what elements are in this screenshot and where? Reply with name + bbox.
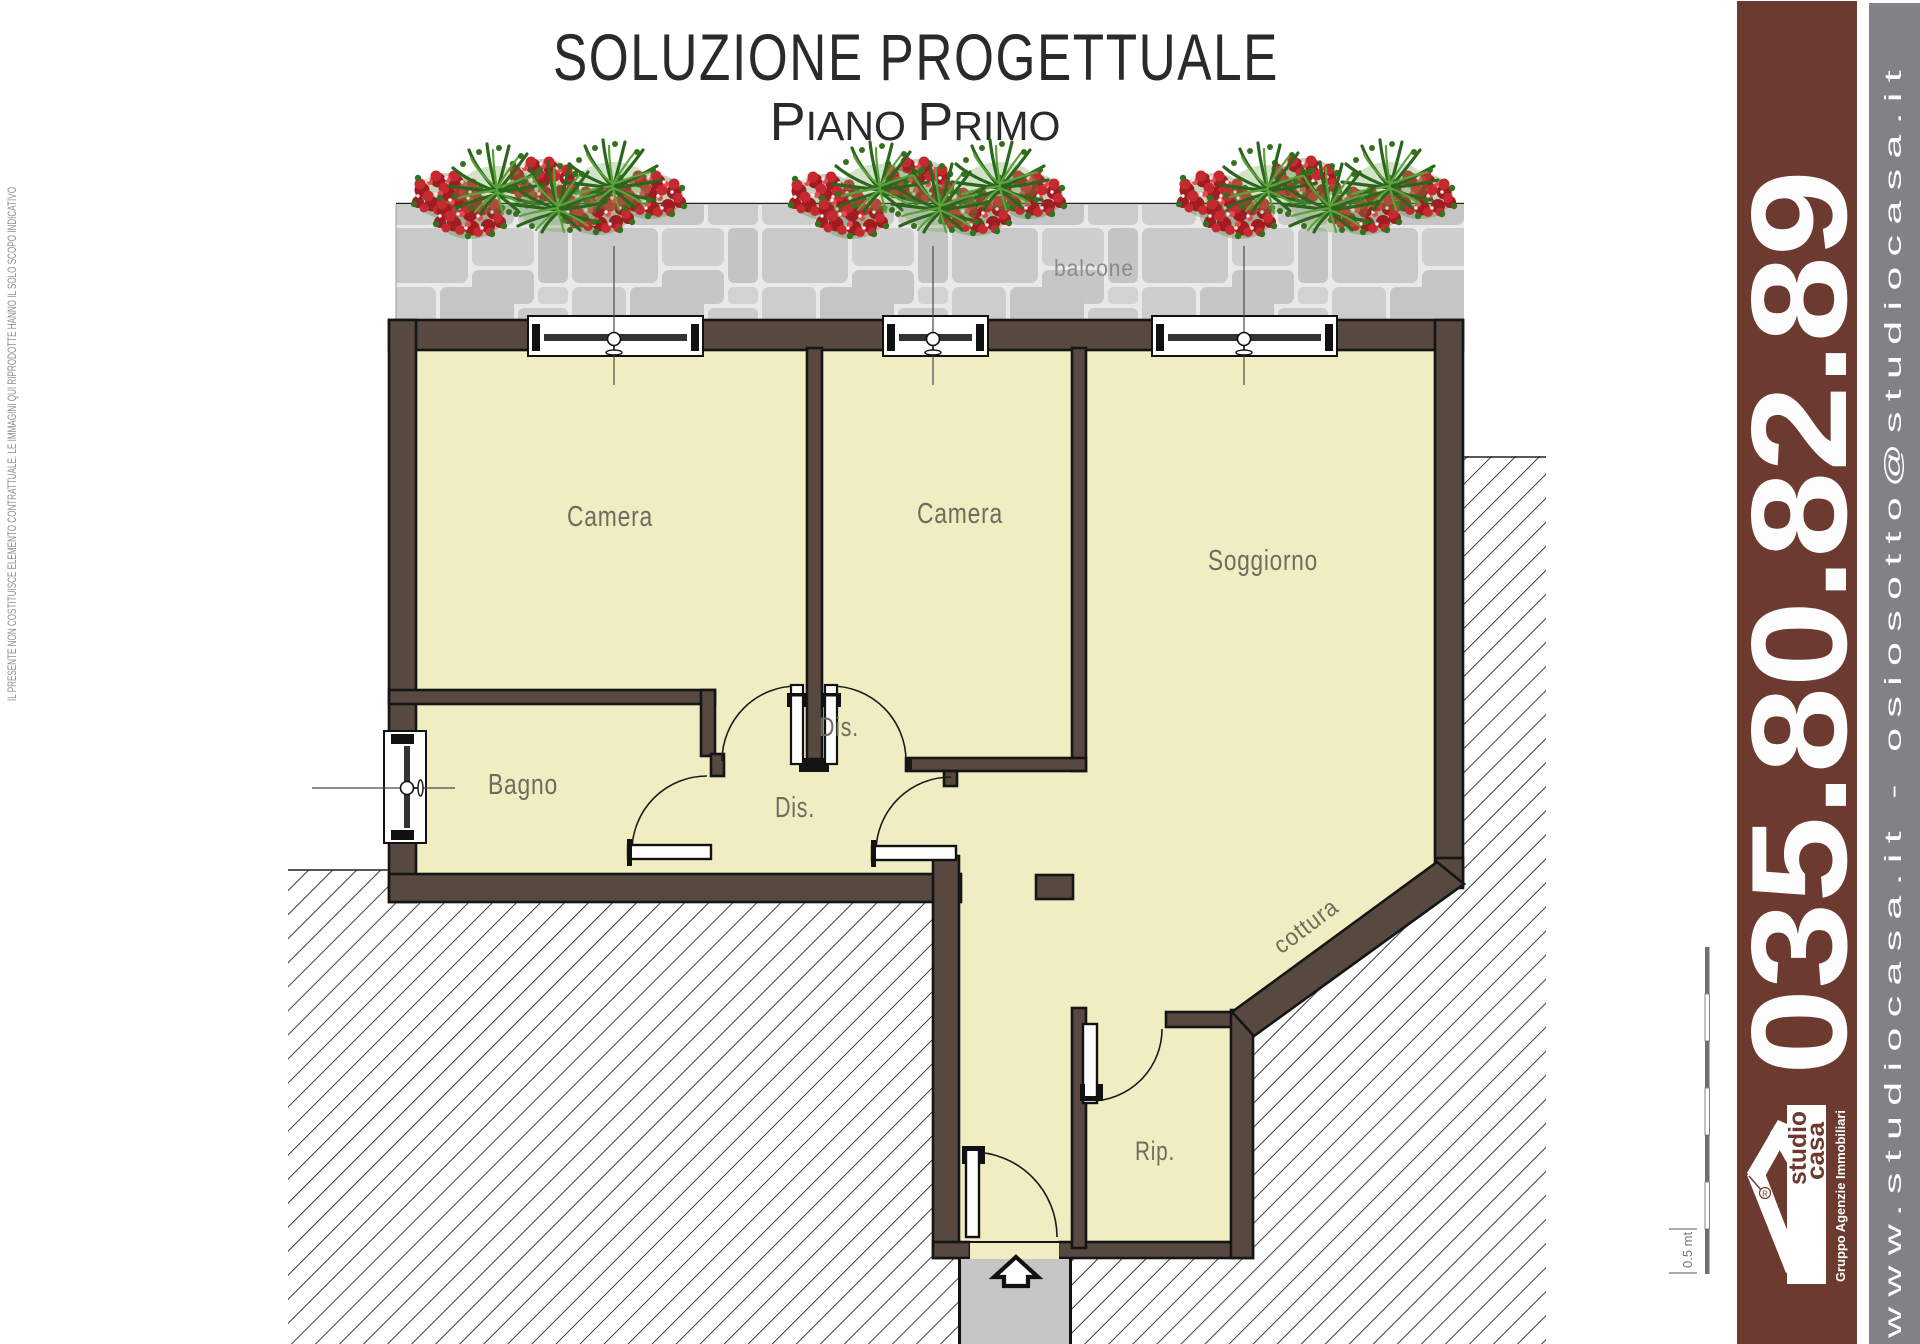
svg-text:casa: casa — [1802, 1121, 1830, 1180]
svg-text:Gruppo Agenzie Immobiliari: Gruppo Agenzie Immobiliari — [1833, 1110, 1848, 1282]
svg-text:Rip.: Rip. — [1135, 1136, 1175, 1166]
svg-text:Soggiorno: Soggiorno — [1208, 545, 1318, 577]
svg-text:IL PRESENTE NON COSTITUISCE EL: IL PRESENTE NON COSTITUISCE ELEMENTO CON… — [7, 187, 19, 701]
svg-text:Dis.: Dis. — [819, 712, 859, 742]
svg-text:Camera: Camera — [917, 498, 1003, 530]
svg-text:SOLUZIONE PROGETTUALE: SOLUZIONE PROGETTUALE — [553, 20, 1279, 94]
svg-text:Dis.: Dis. — [775, 792, 815, 824]
svg-text:balcone: balcone — [1054, 255, 1134, 281]
svg-text:R: R — [1762, 1190, 1768, 1199]
svg-text:Bagno: Bagno — [488, 769, 558, 801]
svg-text:0.5 mt: 0.5 mt — [1680, 1231, 1695, 1268]
svg-text:035.80.82.89: 035.80.82.89 — [1723, 170, 1875, 1075]
svg-text:Camera: Camera — [567, 501, 653, 533]
svg-text:www.studiocasa.it - osiosotto@: www.studiocasa.it - osiosotto@studiocasa… — [1880, 60, 1906, 1340]
